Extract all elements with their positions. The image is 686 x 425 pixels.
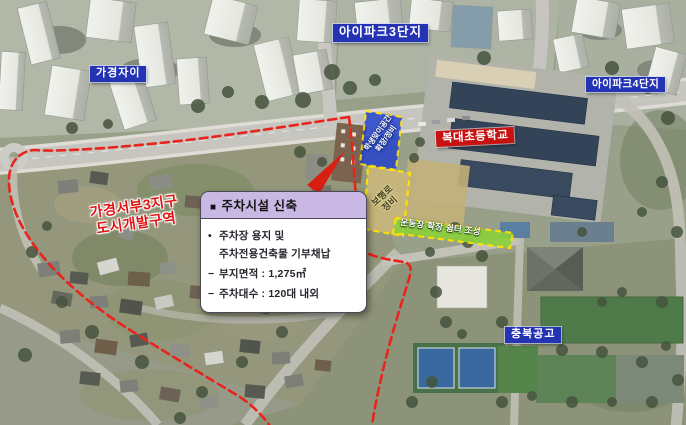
info-line-text: 주차장 용지 및 (219, 230, 284, 242)
dash-icon: − (208, 288, 219, 300)
dash-icon: − (208, 268, 219, 280)
parking-info-box: ■주차시설 신축 •주차장 용지 및 주차전용건축물 기부채납 −부지면적 : … (200, 191, 367, 313)
info-line-text: 주차전용건축물 기부채납 (219, 248, 331, 260)
map-canvas: 학생맞이공간 확장/정비 보행로 정비 운동장 확장 쉼터 조성 가경서부3지구… (0, 0, 686, 425)
bullet-icon: • (208, 230, 219, 242)
label-ipark4: 아이파크4단지 (586, 77, 665, 92)
parking-info-box-title: ■주차시설 신축 (201, 192, 366, 219)
info-line-text: 부지면적 : 1,275㎡ (219, 268, 306, 280)
parking-info-box-body: •주차장 용지 및 주차전용건축물 기부채납 −부지면적 : 1,275㎡ −주… (201, 219, 366, 312)
label-gagyeong-jai: 가경자이 (90, 66, 146, 82)
info-line: 주차전용건축물 기부채납 (208, 246, 359, 261)
info-line: −부지면적 : 1,275㎡ (208, 266, 359, 281)
parking-info-box-title-text: 주차시설 신축 (222, 199, 298, 213)
info-line: •주차장 용지 및 (208, 228, 359, 243)
info-line: −주차대수 : 120대 내외 (208, 286, 359, 301)
label-ipark3: 아이파크3단지 (333, 24, 428, 42)
info-line-text: 주차대수 : 120대 내외 (219, 288, 319, 300)
square-bullet-icon: ■ (210, 202, 217, 213)
label-chungbuk-technical: 충북공고 (505, 327, 561, 343)
